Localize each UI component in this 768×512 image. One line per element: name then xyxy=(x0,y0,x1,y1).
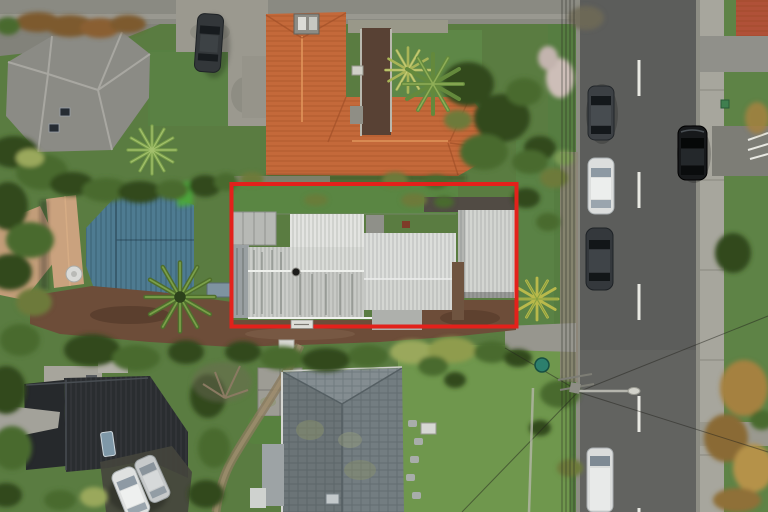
tree-canopy xyxy=(506,78,542,106)
blossom-tree xyxy=(538,46,558,70)
car-roof xyxy=(199,34,218,52)
chimney-cap xyxy=(298,17,306,30)
skylight xyxy=(49,124,59,132)
car-rear-window xyxy=(591,200,611,208)
autumn-tree xyxy=(720,360,768,416)
road-curb-right xyxy=(696,0,700,512)
car-dark-road-upper xyxy=(588,86,614,140)
yellow-bush xyxy=(80,487,108,507)
stepping-stone xyxy=(414,438,423,445)
van-windshield xyxy=(590,456,610,466)
car-roof xyxy=(681,149,704,165)
car-rear-window xyxy=(591,126,611,134)
aerial-photo xyxy=(0,0,768,512)
garden-bush xyxy=(444,372,466,388)
car-dark-top-driveway xyxy=(194,13,224,73)
moss-patch xyxy=(344,460,376,480)
moss-patch xyxy=(296,420,324,440)
step-pad xyxy=(350,106,363,124)
tree-canopy xyxy=(112,345,160,371)
bush xyxy=(554,150,574,166)
chimney-cap xyxy=(309,17,317,30)
bush xyxy=(512,150,548,174)
stepping-stone xyxy=(410,456,419,463)
stepping-stone xyxy=(406,474,415,481)
van-white-road-bottom xyxy=(587,448,613,512)
garden-table xyxy=(421,423,436,434)
lichen-patch xyxy=(338,432,362,448)
small-shed-pad xyxy=(242,56,268,118)
lawn-shrub xyxy=(304,194,328,206)
car-rear-window xyxy=(198,53,218,61)
garden-soil-path xyxy=(362,28,391,135)
utility-box-green xyxy=(721,100,729,108)
white-roof-upper-corr xyxy=(290,214,364,247)
shrub xyxy=(225,341,261,363)
stepping-stone xyxy=(412,492,421,499)
car-white-road-middle xyxy=(588,158,614,214)
dirt-shading xyxy=(440,310,500,326)
shrub xyxy=(260,346,304,370)
shrub xyxy=(504,349,532,367)
car-windshield xyxy=(200,25,221,34)
lawn-shrub xyxy=(434,196,454,208)
dirt-highlight xyxy=(245,328,355,340)
hedge xyxy=(118,181,162,203)
stepping-stone xyxy=(408,420,417,427)
car-black-road-east xyxy=(678,126,707,180)
tree-canopy xyxy=(444,110,472,130)
shrub xyxy=(302,348,350,372)
white-roof-right-corr xyxy=(364,233,456,310)
skylight xyxy=(60,108,70,116)
car-rear-window xyxy=(681,166,704,175)
yellow-bush xyxy=(16,149,44,167)
roof-vent-red xyxy=(402,221,410,228)
tree-canopy xyxy=(64,334,120,366)
car-windshield xyxy=(591,168,611,177)
car-windshield xyxy=(591,96,611,105)
hedge xyxy=(156,180,188,200)
tree-canopy xyxy=(198,428,230,468)
overhanging-tree xyxy=(568,6,604,30)
neighbor-wall xyxy=(748,36,768,56)
roof-junction-pad xyxy=(366,215,384,233)
garage-roof-corr xyxy=(458,210,516,298)
palm-crown xyxy=(174,291,186,303)
car-roof xyxy=(591,178,611,199)
tree-canopy xyxy=(460,134,508,170)
aerial-photo-canvas xyxy=(0,0,768,512)
neighbor-red-roof-tiles xyxy=(736,0,768,36)
shrub xyxy=(348,345,388,367)
side-path-roof xyxy=(233,245,249,318)
tree-canopy xyxy=(16,288,52,316)
bush xyxy=(44,490,76,510)
bush xyxy=(536,213,560,231)
utility-box-white xyxy=(352,66,363,75)
small-shed-roof xyxy=(250,488,266,508)
tree-canopy xyxy=(6,222,54,258)
power-pole xyxy=(569,382,581,394)
car-windshield xyxy=(589,240,610,249)
streetlight-lamp xyxy=(628,388,640,395)
autumn-tree xyxy=(713,488,761,512)
roof-vent xyxy=(326,494,339,504)
rust-hedge xyxy=(110,15,146,33)
autumn-tree xyxy=(745,102,768,134)
lawn-shrub xyxy=(401,193,427,207)
tree-canopy xyxy=(0,324,40,356)
flue-chimney xyxy=(292,268,300,276)
side-dirt-strip xyxy=(452,262,464,320)
car-dark-road-lower xyxy=(586,228,613,290)
bush xyxy=(540,168,568,188)
tree-canopy xyxy=(715,233,751,273)
van-roof xyxy=(590,468,610,510)
utility-manhole-green xyxy=(535,358,549,372)
car-windshield xyxy=(681,138,704,148)
car-roof xyxy=(591,106,611,125)
car-rear-window xyxy=(589,273,610,281)
tree-canopy xyxy=(188,480,224,508)
tree-canopy xyxy=(168,340,204,364)
car-roof xyxy=(589,250,610,272)
garden-bush xyxy=(418,356,448,376)
water-tank-lid xyxy=(71,271,77,277)
garage-front-shadow xyxy=(460,292,514,298)
